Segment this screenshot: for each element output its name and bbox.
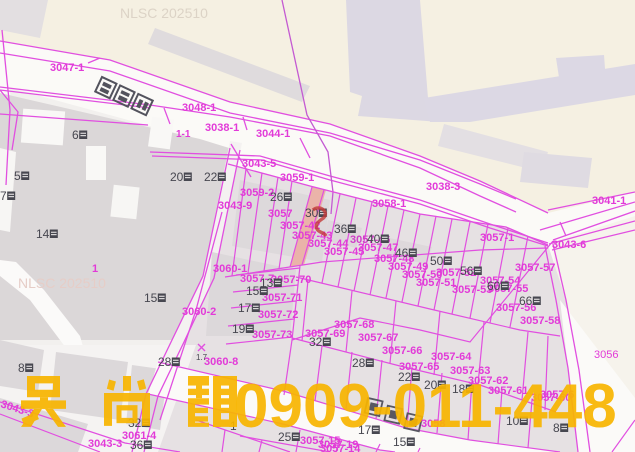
svg-text:22: 22 bbox=[204, 170, 218, 184]
svg-text:36: 36 bbox=[334, 222, 348, 236]
svg-text:7: 7 bbox=[0, 189, 7, 203]
svg-text:3043-6: 3043-6 bbox=[552, 239, 586, 251]
svg-text:3057-72: 3057-72 bbox=[258, 309, 298, 321]
svg-text:32: 32 bbox=[309, 335, 323, 349]
svg-text:3038-3: 3038-3 bbox=[426, 181, 460, 193]
svg-text:3057-58: 3057-58 bbox=[520, 315, 560, 327]
svg-text:3041-1: 3041-1 bbox=[592, 195, 626, 207]
svg-text:60: 60 bbox=[487, 279, 501, 293]
svg-text:3059-1: 3059-1 bbox=[280, 172, 314, 184]
svg-text:3060-8: 3060-8 bbox=[204, 356, 238, 368]
svg-text:5: 5 bbox=[14, 169, 21, 183]
svg-text:40: 40 bbox=[367, 232, 381, 246]
svg-text:3056: 3056 bbox=[594, 349, 618, 361]
svg-text:17: 17 bbox=[238, 301, 252, 315]
svg-text:3057-66: 3057-66 bbox=[382, 345, 422, 357]
svg-text:19: 19 bbox=[232, 322, 246, 336]
svg-text:0909-011-448: 0909-011-448 bbox=[234, 372, 617, 441]
svg-text:3047-1: 3047-1 bbox=[50, 62, 84, 74]
svg-text:1-1: 1-1 bbox=[176, 129, 191, 140]
svg-text:8: 8 bbox=[18, 361, 25, 375]
svg-text:13: 13 bbox=[260, 276, 274, 290]
svg-text:3057-64: 3057-64 bbox=[431, 351, 472, 363]
svg-text:15: 15 bbox=[144, 291, 158, 305]
svg-text:3060-2: 3060-2 bbox=[182, 306, 216, 318]
svg-text:50: 50 bbox=[430, 254, 444, 268]
svg-text:3048-1: 3048-1 bbox=[182, 102, 216, 114]
svg-text:20: 20 bbox=[170, 170, 184, 184]
svg-text:6: 6 bbox=[72, 128, 79, 142]
svg-text:28: 28 bbox=[158, 355, 172, 369]
svg-text:3057: 3057 bbox=[268, 208, 292, 220]
svg-text:3057-71: 3057-71 bbox=[262, 292, 302, 304]
svg-text:3043-3: 3043-3 bbox=[88, 438, 122, 450]
svg-text:3057-67: 3057-67 bbox=[358, 332, 398, 344]
svg-text:3057-57: 3057-57 bbox=[515, 262, 555, 274]
svg-text:15: 15 bbox=[246, 284, 260, 298]
svg-text:66: 66 bbox=[519, 294, 533, 308]
svg-text:46: 46 bbox=[395, 246, 409, 260]
svg-text:3058-1: 3058-1 bbox=[372, 198, 406, 210]
svg-text:3044-1: 3044-1 bbox=[256, 128, 290, 140]
svg-text:56: 56 bbox=[460, 264, 474, 278]
svg-text:28: 28 bbox=[352, 356, 366, 370]
svg-text:NLSC 202510: NLSC 202510 bbox=[18, 275, 106, 291]
svg-text:3043-5: 3043-5 bbox=[242, 158, 276, 170]
svg-text:3038-1: 3038-1 bbox=[205, 122, 239, 134]
svg-text:1.7: 1.7 bbox=[196, 353, 208, 362]
svg-text:3057-1: 3057-1 bbox=[480, 232, 514, 244]
svg-text:1: 1 bbox=[92, 263, 98, 275]
svg-text:3057-73: 3057-73 bbox=[252, 329, 292, 341]
svg-text:3043-9: 3043-9 bbox=[218, 200, 252, 212]
svg-text:26: 26 bbox=[270, 190, 284, 204]
svg-text:14: 14 bbox=[36, 227, 50, 241]
svg-text:NLSC 202510: NLSC 202510 bbox=[120, 5, 208, 21]
svg-text:36: 36 bbox=[130, 438, 144, 452]
